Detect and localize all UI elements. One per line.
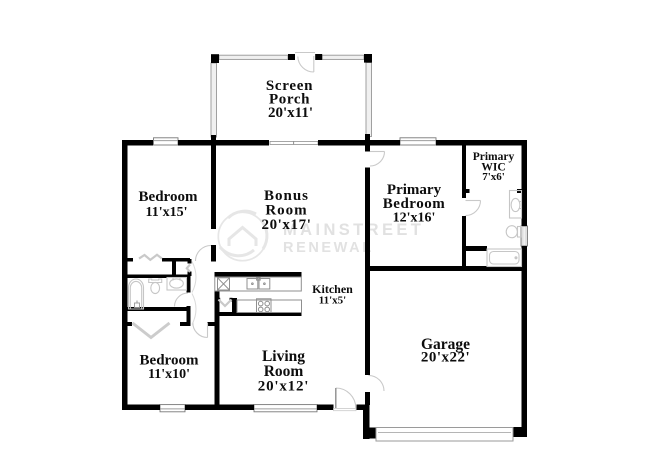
svg-text:20'x22': 20'x22' (421, 350, 470, 366)
svg-text:11'x5': 11'x5' (319, 295, 347, 307)
svg-text:11'x15': 11'x15' (145, 205, 187, 220)
svg-text:11'x10': 11'x10' (148, 367, 190, 382)
svg-text:RENEWAL: RENEWAL (283, 240, 374, 256)
svg-text:Room: Room (264, 363, 304, 380)
svg-text:20'x12': 20'x12' (258, 379, 309, 395)
svg-text:12'x16': 12'x16' (393, 211, 436, 226)
svg-text:Bedroom: Bedroom (139, 189, 198, 205)
svg-text:20'x17': 20'x17' (261, 217, 311, 233)
svg-text:7'x6': 7'x6' (482, 171, 505, 183)
svg-text:20'x11': 20'x11' (268, 105, 313, 121)
